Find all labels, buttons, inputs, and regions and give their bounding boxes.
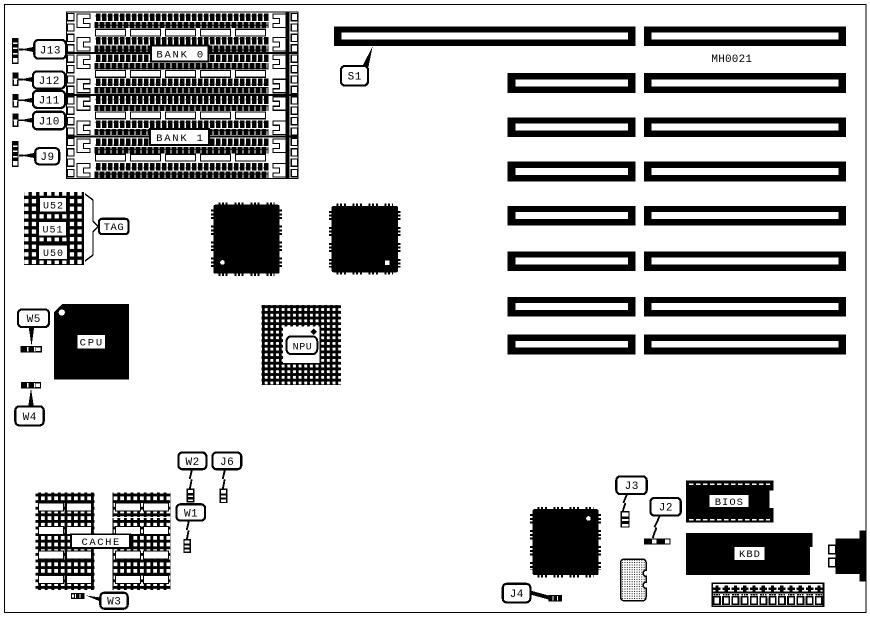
svg-text:W1: W1 <box>184 508 198 520</box>
svg-text:J2: J2 <box>659 503 673 515</box>
svg-text:J3: J3 <box>625 481 639 493</box>
svg-text:CPU: CPU <box>80 337 104 349</box>
svg-text:J11: J11 <box>39 95 60 107</box>
svg-text:KBD: KBD <box>739 549 761 561</box>
svg-text:W4: W4 <box>23 412 37 424</box>
svg-text:W3: W3 <box>107 597 121 609</box>
svg-text:U50: U50 <box>43 249 64 260</box>
svg-text:W5: W5 <box>27 314 41 326</box>
svg-text:J10: J10 <box>39 116 60 128</box>
svg-text:BIOS: BIOS <box>715 497 744 509</box>
svg-text:W2: W2 <box>186 457 200 469</box>
svg-text:CACHE: CACHE <box>81 537 121 549</box>
svg-text:J13: J13 <box>40 45 61 57</box>
svg-text:TAG: TAG <box>104 222 124 234</box>
svg-text:BANK 1: BANK 1 <box>156 133 205 145</box>
svg-text:J12: J12 <box>39 76 60 88</box>
svg-text:U51: U51 <box>42 225 63 236</box>
svg-text:S1: S1 <box>348 72 362 84</box>
svg-text:J6: J6 <box>220 457 234 469</box>
svg-text:J9: J9 <box>40 152 54 164</box>
svg-text:NPU: NPU <box>293 343 313 354</box>
svg-text:BANK 0: BANK 0 <box>156 49 205 61</box>
svg-text:U52: U52 <box>43 201 64 212</box>
svg-text:MH0021: MH0021 <box>711 54 752 66</box>
svg-text:J4: J4 <box>510 589 524 601</box>
